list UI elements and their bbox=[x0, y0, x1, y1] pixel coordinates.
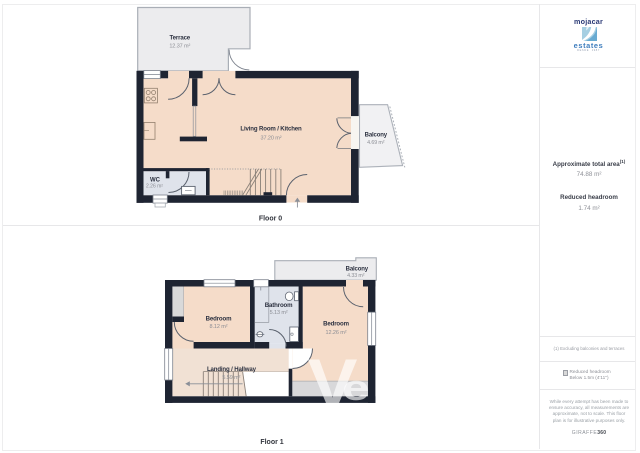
svg-text:37.20 m²: 37.20 m² bbox=[261, 136, 282, 142]
svg-text:5.13 m²: 5.13 m² bbox=[270, 310, 288, 316]
svg-text:Bedroom: Bedroom bbox=[323, 321, 349, 328]
svg-text:Floor 0: Floor 0 bbox=[259, 216, 282, 223]
svg-text:4.33 m²: 4.33 m² bbox=[347, 273, 365, 279]
svg-text:12.26 m²: 12.26 m² bbox=[326, 330, 347, 336]
svg-text:Living Room / Kitchen: Living Room / Kitchen bbox=[240, 126, 302, 133]
svg-text:Balcony: Balcony bbox=[346, 267, 369, 273]
svg-text:WC: WC bbox=[150, 177, 161, 183]
svg-text:2.26 m²: 2.26 m² bbox=[146, 184, 163, 190]
svg-text:Floor 1: Floor 1 bbox=[260, 439, 283, 446]
svg-text:Bedroom: Bedroom bbox=[206, 316, 232, 323]
svg-text:Bathroom: Bathroom bbox=[265, 302, 293, 309]
svg-text:4.69 m²: 4.69 m² bbox=[367, 140, 385, 146]
svg-text:8.12 m²: 8.12 m² bbox=[210, 324, 228, 330]
svg-text:Terrace: Terrace bbox=[170, 35, 191, 42]
svg-text:12.37 m²: 12.37 m² bbox=[169, 44, 190, 50]
svg-text:Landing / Hallway: Landing / Hallway bbox=[207, 366, 257, 373]
svg-text:5.59 m²: 5.59 m² bbox=[222, 375, 240, 381]
svg-text:e: e bbox=[342, 367, 370, 408]
svg-text:Balcony: Balcony bbox=[365, 133, 388, 139]
